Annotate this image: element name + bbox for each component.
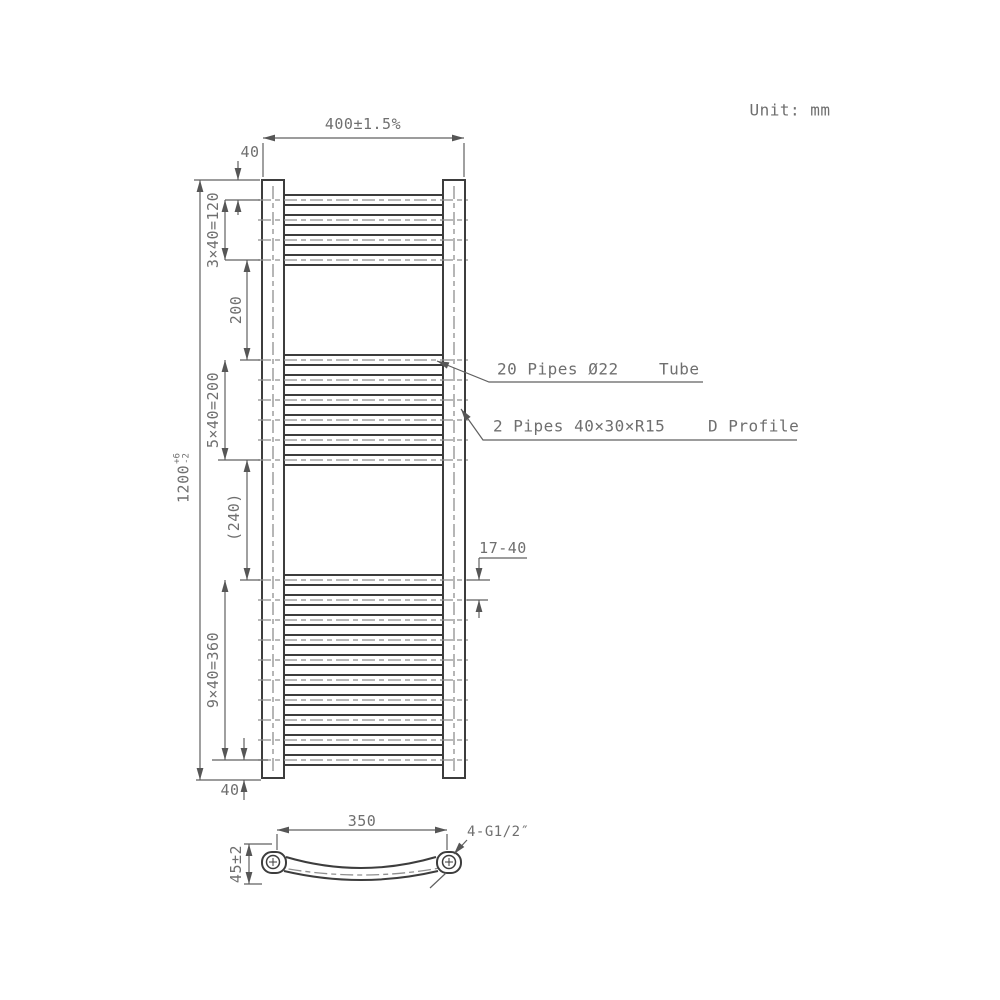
dim-height-tolerance: +6 -2: [174, 453, 193, 464]
arrowhead: [222, 448, 229, 460]
front-view: [258, 180, 468, 778]
arrowhead: [222, 200, 229, 212]
dim-gap2-label: (240): [225, 493, 243, 541]
pipe-rows: [258, 195, 468, 765]
radiator-drawing-canvas: [0, 0, 1000, 1000]
dim-width-label: 400±1.5%: [325, 115, 401, 133]
arrowhead: [452, 135, 464, 142]
dim-group3-label: 9×40=360: [204, 632, 222, 708]
arrowhead: [222, 580, 229, 592]
profile-name-label: D Profile: [708, 417, 799, 436]
dim-group2-label: 5×40=200: [204, 372, 222, 448]
arrowhead: [244, 260, 251, 272]
arrowhead: [246, 844, 253, 856]
arrowhead: [241, 780, 248, 792]
arrowhead: [277, 827, 289, 834]
arrowhead: [476, 600, 483, 612]
unit-label: Unit: mm: [749, 101, 830, 120]
arrowhead: [263, 135, 275, 142]
arrowhead: [241, 748, 248, 760]
technical-drawing-page: Unit: mm 400±1.5% 40 3×40=120 200 5×40=2…: [0, 0, 1000, 1000]
arrowhead: [246, 872, 253, 884]
dim-350-label: 350: [348, 812, 377, 830]
thread-label: 4-G1/2″: [467, 824, 530, 840]
arrowhead: [476, 568, 483, 580]
dim-bottom-offset-label: 40: [220, 781, 239, 799]
arrowhead: [235, 168, 242, 180]
leader-thread-label: [430, 873, 446, 888]
arrowhead: [244, 460, 251, 472]
dim-top-offset-label: 40: [240, 143, 259, 161]
profile-spec-label: 2 Pipes 40×30×R15: [493, 417, 665, 436]
dim-height-value: 1200: [175, 465, 193, 503]
arrowhead: [435, 827, 447, 834]
arrowhead: [222, 248, 229, 260]
dim-pipe-spacing-label: 17-40: [479, 539, 527, 557]
arrowhead: [244, 348, 251, 360]
dim-group1-label: 3×40=120: [204, 192, 222, 268]
arrowhead: [197, 768, 204, 780]
tube-name-label: Tube: [659, 360, 700, 379]
arrowhead: [222, 748, 229, 760]
arrowhead: [235, 200, 242, 212]
arrowhead: [197, 180, 204, 192]
curved-rail-front-edge: [286, 857, 436, 868]
dim-depth-label: 45±2: [227, 845, 245, 883]
arrowhead: [222, 360, 229, 372]
tube-spec-label: 20 Pipes Ø22: [497, 360, 619, 379]
arrowhead: [244, 568, 251, 580]
dim-gap1-label: 200: [227, 296, 245, 325]
dim-height-label: 1200 +6 -2: [175, 453, 194, 503]
top-view: [244, 830, 467, 888]
